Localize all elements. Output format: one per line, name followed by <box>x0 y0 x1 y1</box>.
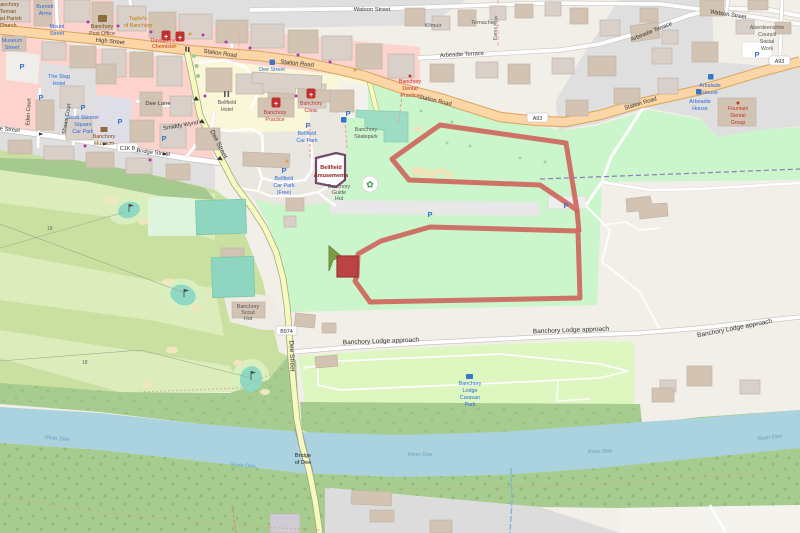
svg-text:Bellfield: Bellfield <box>275 176 294 182</box>
svg-text:Social: Social <box>760 39 774 45</box>
svg-text:Bellfield: Bellfield <box>218 100 237 106</box>
svg-text:P: P <box>754 50 759 59</box>
svg-text:Dee Lane: Dee Lane <box>145 101 170 107</box>
svg-text:+: + <box>274 101 278 108</box>
svg-text:Park: Park <box>464 402 475 408</box>
svg-text:of Banchory: of Banchory <box>124 23 153 29</box>
svg-text:Museum: Museum <box>2 38 23 44</box>
svg-text:Banchory: Banchory <box>0 2 20 8</box>
svg-text:Burnett: Burnett <box>36 4 54 10</box>
svg-text:Earns Row: Earns Row <box>493 15 500 40</box>
svg-text:Car Park: Car Park <box>273 183 295 189</box>
svg-text:Banchory: Banchory <box>93 134 116 140</box>
svg-text:+: + <box>178 35 182 42</box>
svg-text:Work: Work <box>761 46 774 52</box>
svg-text:C1K B: C1K B <box>120 146 136 152</box>
svg-text:✿: ✿ <box>366 180 374 190</box>
svg-text:of Dee: of Dee <box>295 460 311 466</box>
svg-text:Banchory: Banchory <box>264 110 287 116</box>
svg-text:Chemists: Chemists <box>152 44 174 50</box>
svg-text:Banchory: Banchory <box>399 79 422 85</box>
svg-text:P: P <box>161 134 166 143</box>
svg-text:Banchory: Banchory <box>355 127 378 133</box>
svg-text:P: P <box>80 103 85 112</box>
svg-text:Scott Skinner: Scott Skinner <box>67 115 99 121</box>
svg-text:Arbalade: Arbalade <box>699 83 721 89</box>
svg-text:P: P <box>427 210 432 219</box>
svg-text:(Free): (Free) <box>277 190 292 196</box>
svg-text:Practice: Practice <box>265 117 284 123</box>
svg-text:Skatepark: Skatepark <box>354 134 378 140</box>
svg-text:P: P <box>117 117 122 126</box>
svg-text:+: + <box>309 92 313 99</box>
svg-text:Banchory: Banchory <box>459 381 482 387</box>
svg-text:A93: A93 <box>775 59 785 65</box>
svg-text:Group: Group <box>731 120 746 126</box>
svg-text:P: P <box>281 166 286 175</box>
svg-text:Dee Street: Dee Street <box>287 340 295 371</box>
svg-text:River Dee: River Dee <box>408 452 433 458</box>
svg-text:Dental: Dental <box>402 86 417 92</box>
svg-text:P: P <box>19 62 24 71</box>
svg-text:Church: Church <box>0 23 17 29</box>
svg-text:Aberdeenshire: Aberdeenshire <box>750 25 785 31</box>
svg-text:Museum: Museum <box>94 141 115 147</box>
svg-text:Ternan: Ternan <box>0 9 16 15</box>
svg-text:Car Park: Car Park <box>72 129 94 135</box>
svg-text:Ternachie: Ternachie <box>471 20 495 26</box>
svg-text:Banchory: Banchory <box>91 24 114 30</box>
svg-text:Bellfield: Bellfield <box>298 131 317 137</box>
svg-text:Arbeadie: Arbeadie <box>689 99 711 105</box>
svg-text:Arms: Arms <box>39 11 52 17</box>
svg-text:House: House <box>692 106 708 112</box>
svg-text:Banchory: Banchory <box>300 101 323 107</box>
svg-text:Hut: Hut <box>335 196 344 202</box>
svg-text:A93: A93 <box>533 116 543 122</box>
svg-text:Car Park: Car Park <box>296 138 318 144</box>
svg-text:Caravan: Caravan <box>460 395 480 401</box>
svg-text:Hut: Hut <box>244 316 253 322</box>
svg-text:18: 18 <box>82 360 88 366</box>
svg-text:Taylor's: Taylor's <box>129 16 147 22</box>
svg-text:Hotel: Hotel <box>53 81 66 87</box>
svg-text:Dental: Dental <box>730 113 745 119</box>
svg-text:Watson Street: Watson Street <box>354 7 391 13</box>
svg-text:Street: Street <box>5 45 20 51</box>
svg-text:Lodge: Lodge <box>463 388 478 394</box>
svg-text:Council: Council <box>758 32 776 38</box>
svg-text:Bellfield: Bellfield <box>320 165 341 171</box>
svg-text:P: P <box>38 93 43 102</box>
svg-text:Dee Street: Dee Street <box>259 67 285 73</box>
svg-text:P: P <box>345 109 350 118</box>
svg-text:Street: Street <box>50 31 65 37</box>
svg-text:Post Office: Post Office <box>89 31 115 37</box>
svg-text:Fountain: Fountain <box>728 106 749 112</box>
svg-text:B974: B974 <box>280 329 293 335</box>
svg-text:Square: Square <box>74 122 91 128</box>
svg-text:Mount: Mount <box>50 24 65 30</box>
svg-text:Kilmuir: Kilmuir <box>425 23 442 29</box>
svg-text:The Stag: The Stag <box>48 74 70 80</box>
svg-text:East Parish: East Parish <box>0 16 22 22</box>
svg-text:Amusements: Amusements <box>314 173 349 179</box>
svg-text:Hotel: Hotel <box>221 107 233 113</box>
svg-text:House: House <box>702 90 718 96</box>
svg-text:18: 18 <box>47 226 53 232</box>
svg-text:P: P <box>563 201 568 210</box>
svg-text:Clinic: Clinic <box>305 108 318 114</box>
svg-text:Bridge: Bridge <box>295 453 311 459</box>
svg-text:Practice: Practice <box>400 93 419 99</box>
